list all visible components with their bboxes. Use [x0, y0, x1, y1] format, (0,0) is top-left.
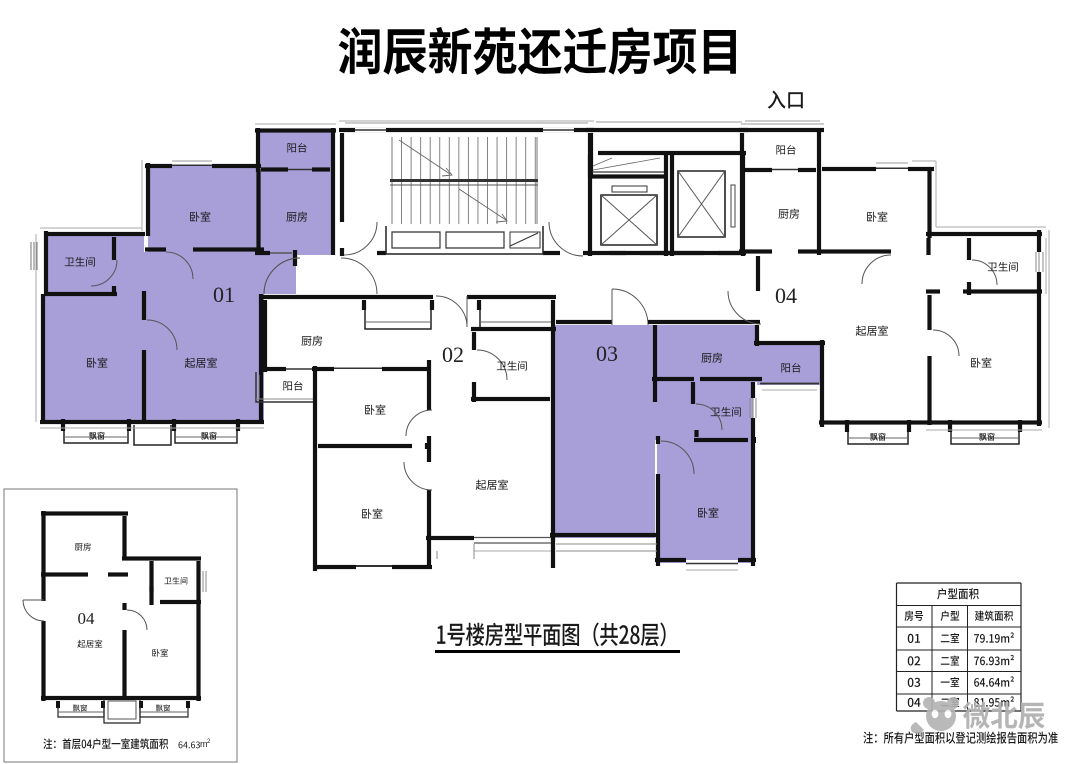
svg-text:04: 04 [775, 283, 797, 308]
svg-text:04: 04 [78, 609, 96, 628]
svg-text:02: 02 [442, 342, 464, 367]
svg-text:03: 03 [596, 341, 618, 366]
svg-text:01: 01 [213, 282, 235, 307]
